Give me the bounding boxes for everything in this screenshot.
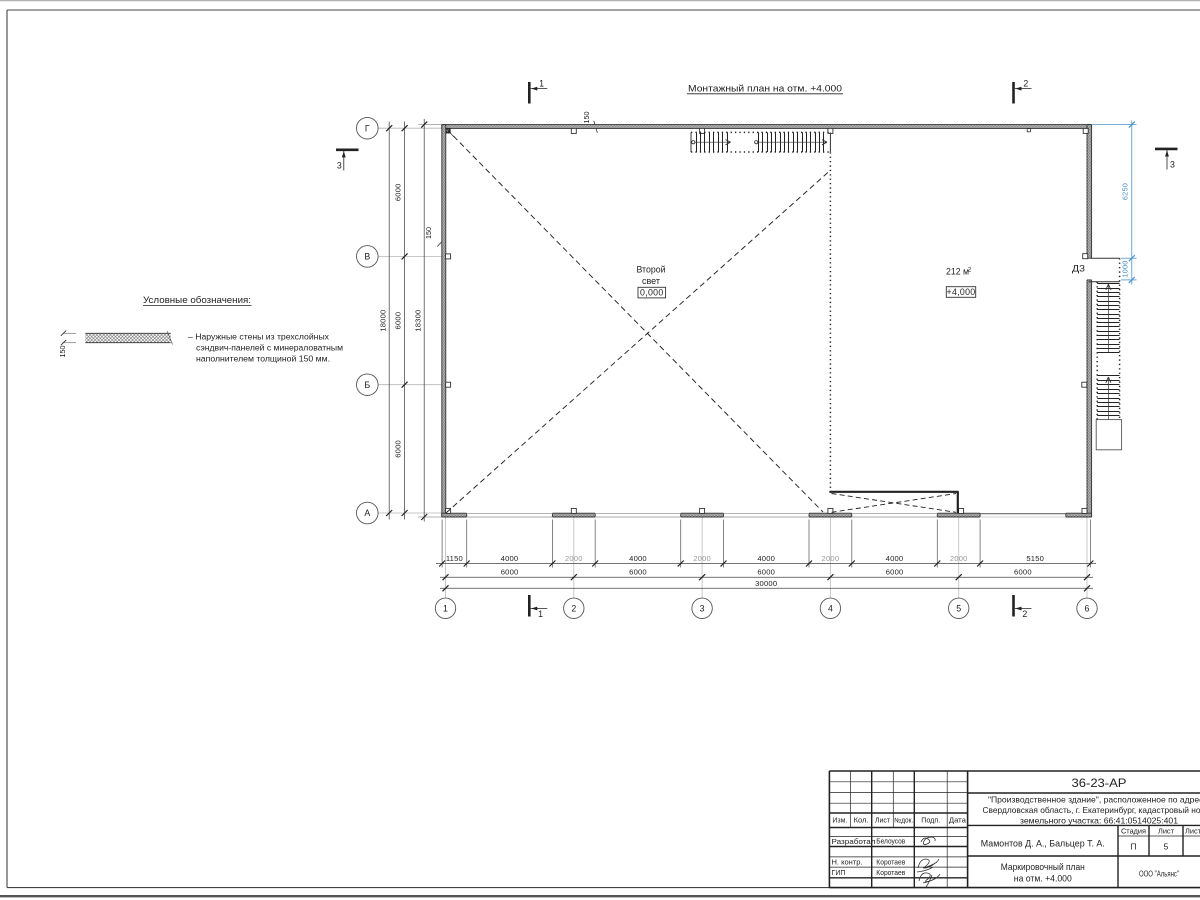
svg-text:6000: 6000 [629,568,647,577]
svg-text:Н. контр.: Н. контр. [832,857,863,866]
svg-text:150: 150 [424,227,433,239]
svg-text:Д3: Д3 [1072,263,1085,273]
svg-text:Мамонтов Д. А., Бальцер Т. А.: Мамонтов Д. А., Бальцер Т. А. [981,839,1105,849]
svg-text:4: 4 [828,604,833,614]
svg-text:2000: 2000 [693,554,711,563]
svg-text:4000: 4000 [501,554,519,563]
svg-text:– Наружные стены из трехслойны: – Наружные стены из трехслойных [188,332,330,342]
svg-text:18300: 18300 [413,310,422,332]
svg-text:Разработал: Разработал [832,837,876,846]
svg-text:П: П [1130,842,1136,852]
svg-text:В: В [364,252,370,262]
svg-text:6000: 6000 [1014,568,1032,577]
svg-text:Свердловская область, г. Екате: Свердловская область, г. Екатеринбург, к… [983,806,1200,815]
svg-text:30000: 30000 [755,579,777,588]
svg-text:Лист: Лист [875,816,891,825]
svg-text:ГИП: ГИП [832,868,846,877]
svg-text:Второй: Второй [637,264,666,274]
svg-text:5: 5 [1164,842,1169,852]
svg-text:5150: 5150 [1026,554,1044,563]
svg-text:свет: свет [642,276,660,286]
svg-text:Листов: Листов [1185,827,1200,836]
svg-text:2000: 2000 [950,554,968,563]
svg-text:Б: Б [364,380,370,390]
svg-text:Монтажный план на отм. +4.000: Монтажный план на отм. +4.000 [688,83,842,94]
svg-text:0,000: 0,000 [640,288,664,298]
svg-text:4000: 4000 [757,554,775,563]
svg-text:6000: 6000 [886,568,904,577]
svg-text:4000: 4000 [629,554,647,563]
svg-text:6000: 6000 [394,312,403,330]
svg-text:Кол.: Кол. [854,816,869,825]
svg-text:150: 150 [582,112,591,124]
svg-text:3: 3 [700,604,705,614]
svg-text:2000: 2000 [822,554,840,563]
svg-text:6000: 6000 [757,568,775,577]
svg-text:Белоусов: Белоусов [876,837,905,846]
svg-text:земельного участка: 66:41:0514: земельного участка: 66:41:0514025:401 [1020,816,1178,825]
svg-text:"Производственное здание", рас: "Производственное здание", расположенное… [988,795,1200,804]
svg-text:Изм.: Изм. [832,816,847,825]
svg-text:18000: 18000 [378,310,387,332]
svg-text:6: 6 [1085,604,1090,614]
svg-text:2: 2 [1023,78,1028,88]
svg-text:6000: 6000 [394,183,403,201]
svg-text:Маркировочный план: Маркировочный план [1001,862,1085,872]
svg-text:3: 3 [337,161,342,171]
svg-text:+4,000: +4,000 [947,287,976,297]
svg-text:1: 1 [538,609,543,619]
svg-text:наполнителем толщиной 150 мм.: наполнителем толщиной 150 мм. [196,354,330,364]
svg-text:1: 1 [443,604,448,614]
svg-text:4000: 4000 [886,554,904,563]
svg-text:Условные обозначения:: Условные обозначения: [143,295,251,305]
svg-text:2000: 2000 [565,554,583,563]
svg-text:ООО "Альянс": ООО "Альянс" [1139,868,1179,878]
svg-text:№док.: №док. [894,818,913,825]
svg-text:1150: 1150 [446,554,463,563]
svg-text:Коротаев: Коротаев [876,868,905,877]
svg-text:3: 3 [1170,160,1175,170]
svg-text:36-23-АР: 36-23-АР [1072,776,1127,790]
svg-text:Г: Г [365,123,370,133]
svg-text:212 м: 212 м [946,266,969,276]
svg-text:6000: 6000 [501,568,519,577]
svg-text:А: А [364,508,370,518]
svg-text:5: 5 [956,604,961,614]
svg-text:6000: 6000 [394,440,403,458]
svg-text:сэндвич-панелей с минераловатн: сэндвич-панелей с минераловатным [196,343,343,353]
svg-text:Стадия: Стадия [1121,827,1146,836]
svg-text:1: 1 [539,78,544,88]
svg-text:150: 150 [58,346,67,358]
svg-text:на отм. +4.000: на отм. +4.000 [1014,873,1072,883]
svg-text:6250: 6250 [1121,183,1130,200]
svg-text:2: 2 [571,604,576,614]
svg-text:Дата: Дата [949,816,967,825]
svg-text:Лист: Лист [1158,827,1174,836]
svg-text:1000: 1000 [1121,260,1130,277]
svg-text:2: 2 [1022,609,1027,619]
svg-text:Коротаев: Коротаев [876,857,905,866]
svg-text:Подп.: Подп. [921,816,940,825]
